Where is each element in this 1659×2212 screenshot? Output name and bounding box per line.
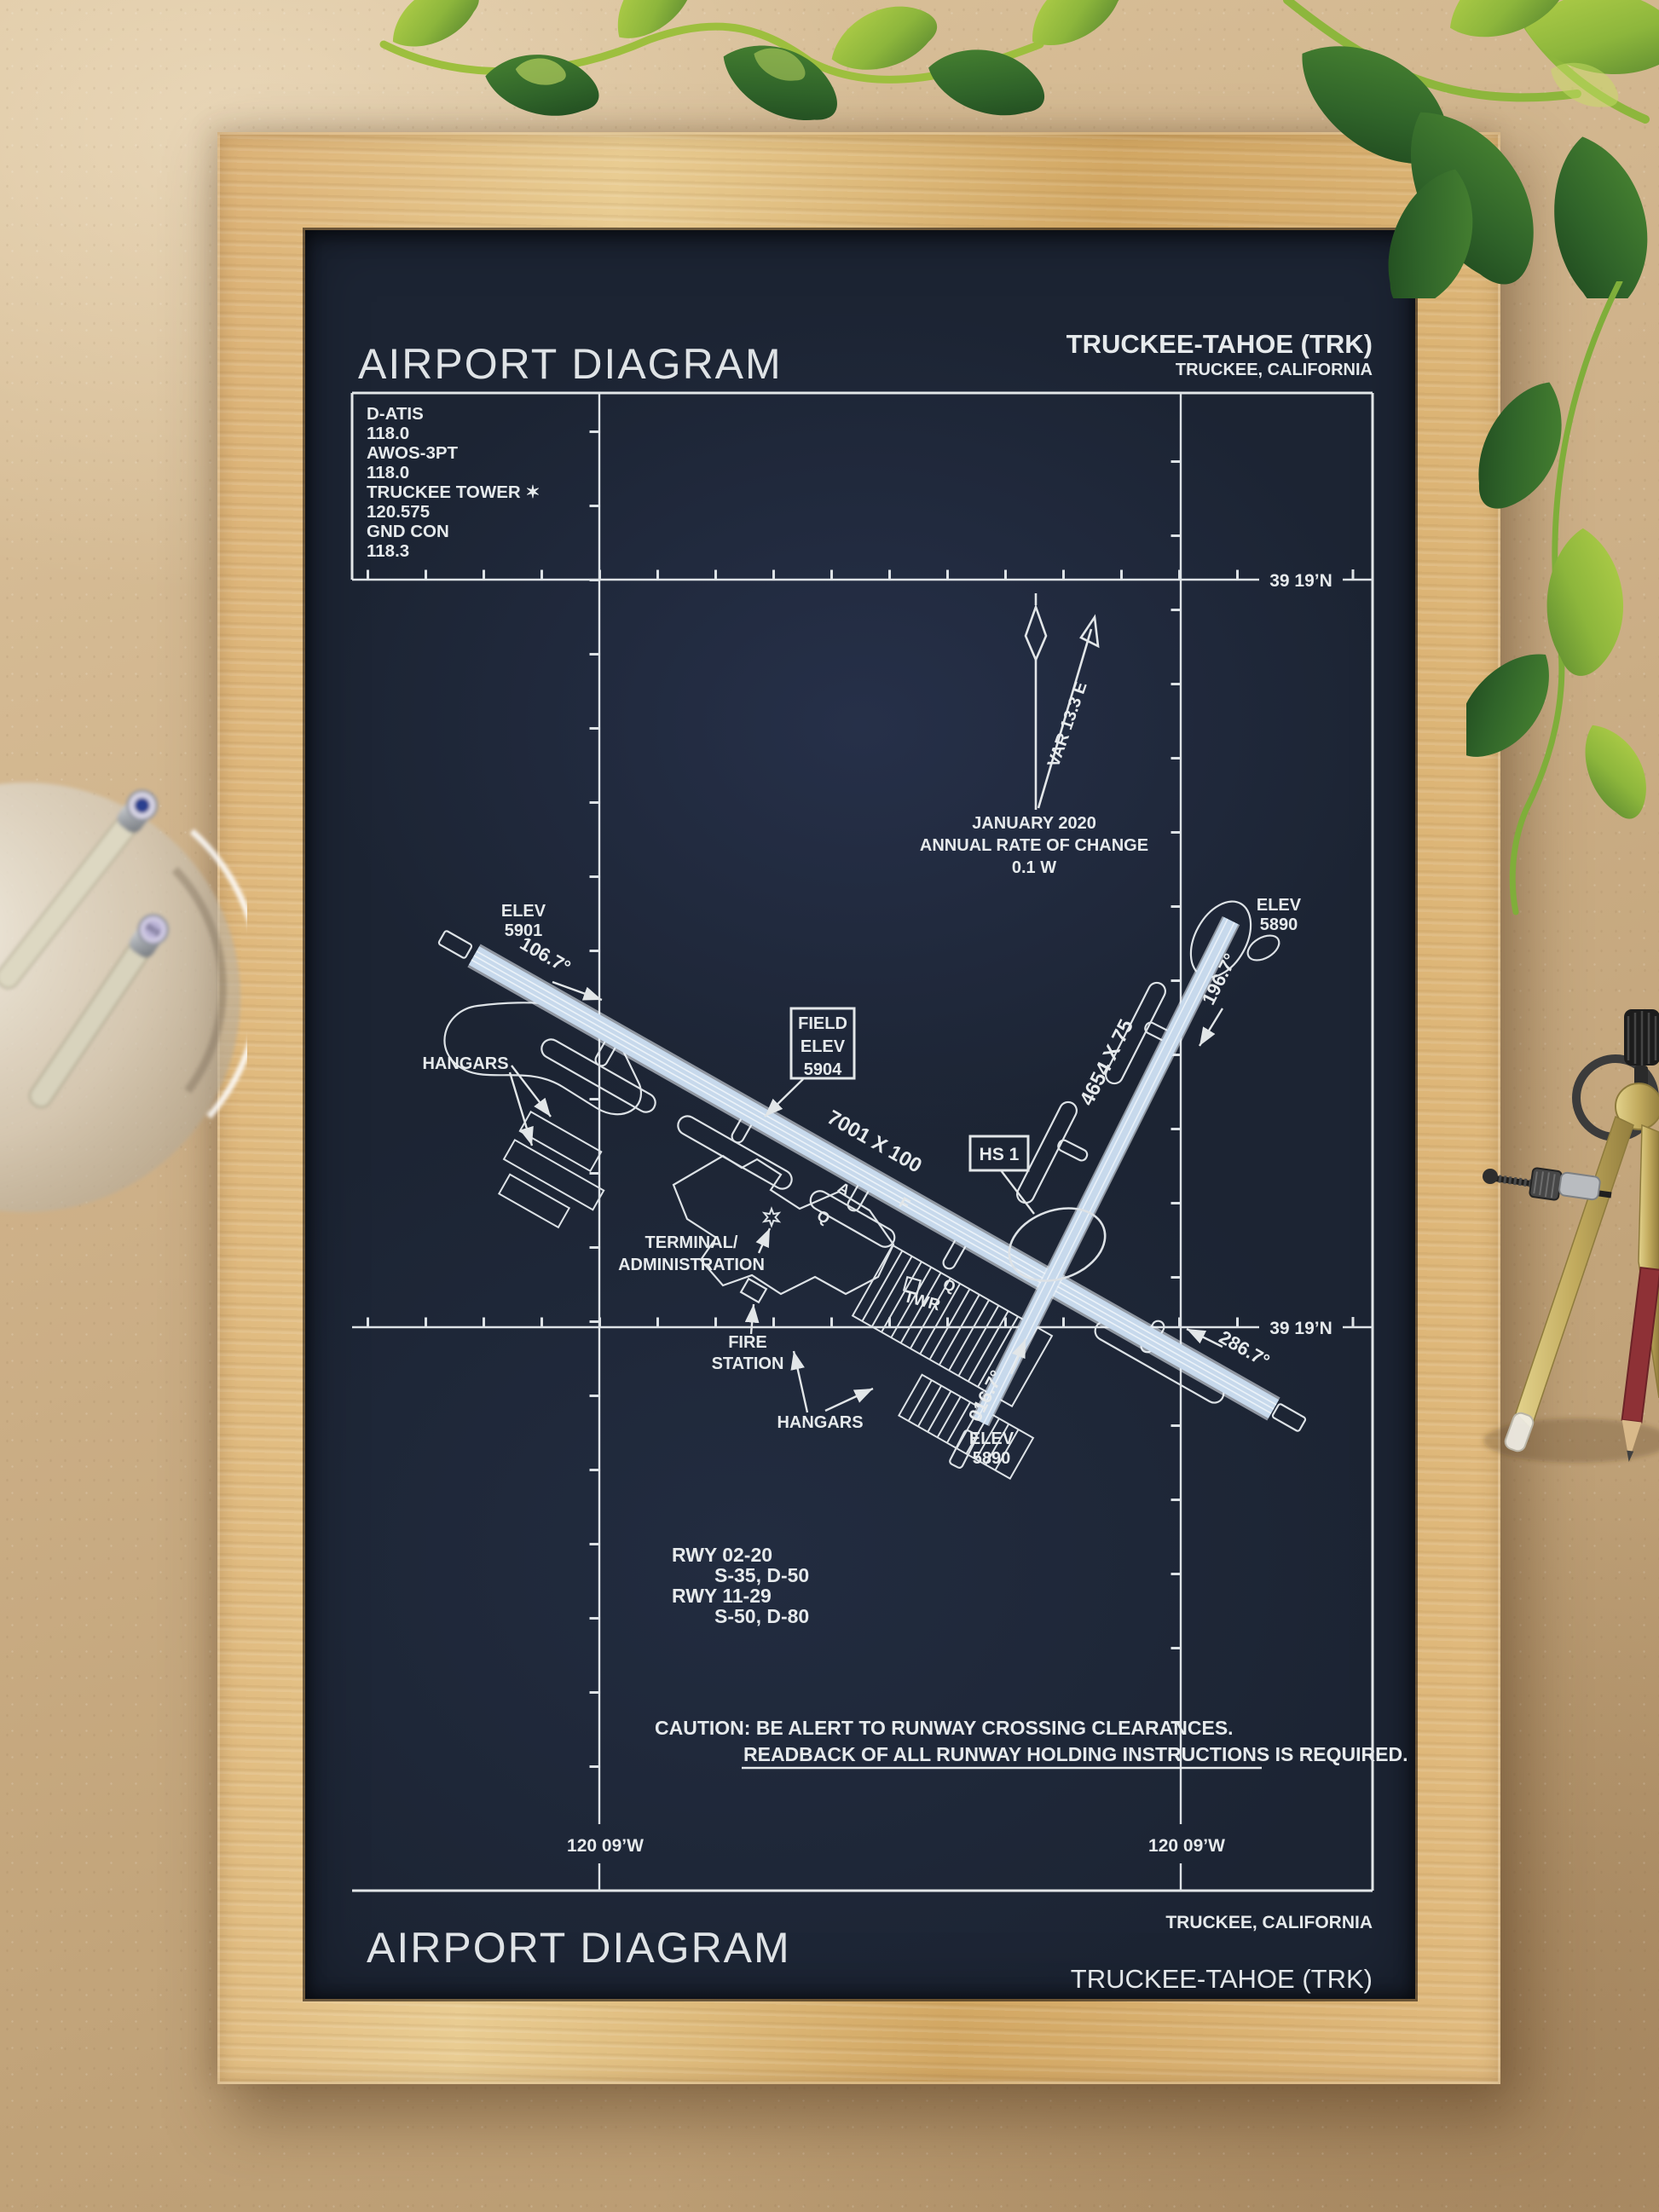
taxiway-letter-a: A bbox=[835, 1179, 853, 1199]
photo-backdrop: { "header": { "title": "AIRPORT DIAGRAM"… bbox=[0, 0, 1659, 2212]
hangars-west-label: HANGARS bbox=[422, 1054, 508, 1073]
variation-value: 0.1 W bbox=[1012, 858, 1056, 877]
magnetic-variation-label: VAR 13.3 E bbox=[1044, 679, 1091, 770]
beacon-star-icon bbox=[764, 1209, 778, 1226]
elev-rwy20-line2: 5890 bbox=[1260, 915, 1298, 934]
rwy-data-1-strength: S-35, D-50 bbox=[714, 1564, 809, 1586]
runway-data-block: RWY 02-20 S-35, D-50 RWY 11-29 S-50, D-8… bbox=[672, 1544, 809, 1627]
field-elev-line2: ELEV bbox=[801, 1037, 846, 1056]
hot-spot-box: HS 1 bbox=[970, 1136, 1028, 1170]
comm-row: TRUCKEE TOWER ✶ bbox=[367, 482, 540, 502]
comm-row: D-ATIS bbox=[367, 404, 424, 424]
header-city: TRUCKEE, CALIFORNIA bbox=[1176, 361, 1373, 379]
latitude-label-top: 39 19’N bbox=[1269, 571, 1332, 591]
longitude-label-left: 120 09’W bbox=[567, 1836, 644, 1856]
elev-rwy11-line1: ELEV bbox=[501, 902, 546, 921]
hot-spot-circle bbox=[999, 1196, 1115, 1294]
header-airport-name: TRUCKEE-TAHOE (TRK) bbox=[1066, 329, 1373, 359]
variation-month: JANUARY 2020 bbox=[972, 814, 1096, 833]
compass-ring bbox=[1576, 1059, 1655, 1137]
technical-pen: 005 bbox=[23, 910, 173, 1113]
elev-rwy02-line2: 5890 bbox=[973, 1449, 1011, 1468]
glass-with-pens: 005 bbox=[0, 750, 247, 1245]
fire-station-label-line1: FIRE bbox=[728, 1333, 767, 1352]
runway-11-29 bbox=[471, 951, 1276, 1413]
vine-stem bbox=[1512, 281, 1620, 912]
hot-spot-label: HS 1 bbox=[980, 1145, 1020, 1164]
elev-rwy11-line2: 5901 bbox=[505, 921, 543, 940]
rwy-data-2: RWY 11-29 bbox=[672, 1585, 772, 1607]
compass-knob bbox=[1624, 1009, 1659, 1066]
longitude-label-right: 120 09’W bbox=[1148, 1836, 1225, 1856]
glass-body bbox=[0, 783, 240, 1212]
rwy-29-heading: 286.7° bbox=[1216, 1326, 1274, 1372]
footer-airport-name: TRUCKEE-TAHOE (TRK) bbox=[1071, 1964, 1373, 1994]
technical-pen bbox=[0, 785, 163, 995]
elev-rwy02-line1: ELEV bbox=[969, 1429, 1014, 1448]
rwy-02-20-dimensions: 4654 X 75 bbox=[1075, 1016, 1138, 1110]
comm-row: 118.0 bbox=[367, 463, 409, 482]
caution-block: CAUTION: BE ALERT TO RUNWAY CROSSING CLE… bbox=[655, 1717, 1408, 1768]
comm-row: GND CON bbox=[367, 522, 449, 541]
field-elev-line1: FIELD bbox=[798, 1014, 847, 1033]
comm-row: 118.3 bbox=[367, 541, 409, 561]
comm-frequency-box: D-ATIS 118.0 AWOS-3PT 118.0 TRUCKEE TOWE… bbox=[367, 404, 540, 561]
rwy-data-2-strength: S-50, D-80 bbox=[714, 1605, 809, 1627]
compass-screw-rod bbox=[1492, 1178, 1611, 1195]
caution-line1: CAUTION: BE ALERT TO RUNWAY CROSSING CLE… bbox=[655, 1717, 1234, 1739]
plant-stem bbox=[1287, 0, 1645, 119]
airport-diagram-poster: AIRPORT DIAGRAM TRUCKEE-TAHOE (TRK) TRUC… bbox=[305, 230, 1415, 1999]
field-elevation-box: FIELD ELEV 5904 bbox=[791, 1008, 854, 1079]
footer-city: TRUCKEE, CALIFORNIA bbox=[1165, 1913, 1373, 1932]
north-variation-arrows bbox=[1026, 593, 1098, 810]
red-pencil bbox=[1617, 1268, 1659, 1463]
field-elev-line3: 5904 bbox=[804, 1060, 842, 1079]
rwy-data-1: RWY 02-20 bbox=[672, 1544, 772, 1566]
plant-stem bbox=[384, 26, 1040, 79]
variation-rate: ANNUAL RATE OF CHANGE bbox=[920, 836, 1148, 855]
variation-date-block: JANUARY 2020 ANNUAL RATE OF CHANGE 0.1 W bbox=[920, 814, 1148, 877]
latitude-label-bottom: 39 19’N bbox=[1269, 1319, 1332, 1338]
terminal-label-line2: ADMINISTRATION bbox=[618, 1256, 765, 1274]
elev-rwy20-line1: ELEV bbox=[1257, 896, 1302, 915]
compass-tip-cap bbox=[1503, 1411, 1535, 1453]
comm-row: 120.575 bbox=[367, 502, 430, 522]
compass-leg-right bbox=[1639, 1125, 1659, 1398]
fire-station-label-line2: STATION bbox=[712, 1354, 784, 1373]
hangars-south-label: HANGARS bbox=[777, 1413, 863, 1432]
pen-cap-size-label: 005 bbox=[143, 921, 162, 939]
poster-title-bottom: AIRPORT DIAGRAM bbox=[367, 1924, 791, 1972]
compass-leg-left bbox=[1516, 1117, 1633, 1429]
comm-row: 118.0 bbox=[367, 424, 409, 443]
comm-row: AWOS-3PT bbox=[367, 443, 459, 463]
building-labels: HANGARS HANGARS TERMINAL/ ADMINISTRATION… bbox=[422, 1054, 942, 1432]
caution-line2: READBACK OF ALL RUNWAY HOLDING INSTRUCTI… bbox=[743, 1743, 1408, 1765]
terminal-label-line1: TERMINAL/ bbox=[645, 1233, 738, 1252]
tower-label: TWR bbox=[902, 1288, 942, 1315]
poster-title-top: AIRPORT DIAGRAM bbox=[358, 340, 783, 388]
airport-diagram-art: AIRPORT DIAGRAM TRUCKEE-TAHOE (TRK) TRUC… bbox=[305, 230, 1415, 1999]
